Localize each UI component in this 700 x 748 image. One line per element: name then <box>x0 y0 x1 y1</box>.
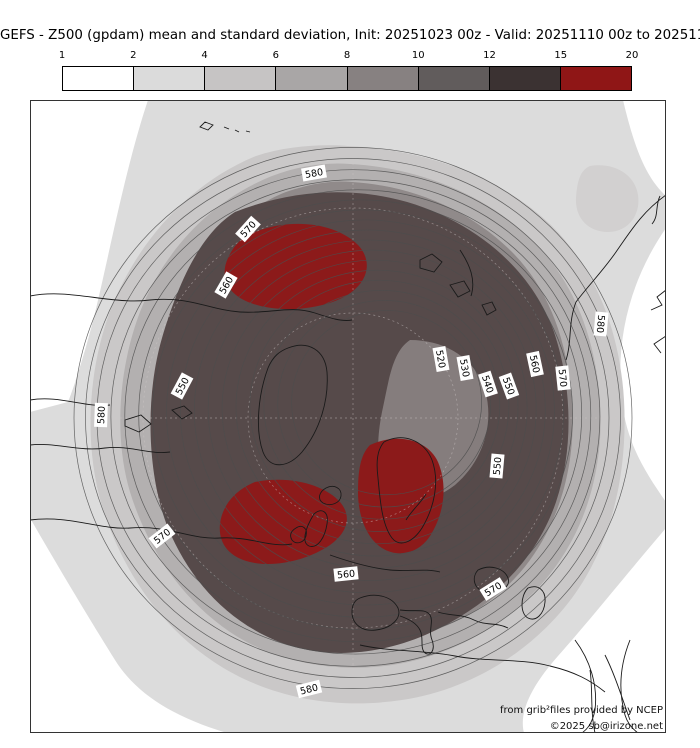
colorbar-segment <box>490 67 561 90</box>
colorbar-segment <box>276 67 347 90</box>
stddev-shading-layer <box>30 100 666 733</box>
contour-label-text: 560 <box>337 569 356 582</box>
attribution-copyright: ©2025 sb@irizone.net <box>550 721 663 732</box>
colorbar-segment <box>561 67 631 90</box>
colorbar-tick-label: 20 <box>612 50 652 61</box>
map-svg: 5805705605505805705205305405505605705805… <box>30 100 666 733</box>
colorbar-segment <box>419 67 490 90</box>
contour-label: 580 <box>94 403 108 427</box>
colorbar-segment <box>63 67 134 90</box>
colorbar-segment <box>205 67 276 90</box>
contour-label: 580 <box>593 311 608 336</box>
colorbar-tick-label: 4 <box>185 50 225 61</box>
contour-label-text: 580 <box>594 314 607 333</box>
colorbar-tick-label: 12 <box>470 50 510 61</box>
colorbar-tick-labels: 1246810121520 <box>0 50 700 64</box>
attribution-source: from grib²files provided by NCEP <box>500 705 663 716</box>
colorbar-tick-label: 8 <box>327 50 367 61</box>
colorbar-tick-label: 6 <box>256 50 296 61</box>
contour-label: 560 <box>333 566 358 581</box>
contour-label-text: 570 <box>556 369 569 388</box>
colorbar <box>62 66 632 91</box>
contour-label-text: 580 <box>96 406 108 425</box>
contour-label: 550 <box>489 453 504 478</box>
colorbar-tick-label: 15 <box>541 50 581 61</box>
colorbar-tick-label: 1 <box>42 50 82 61</box>
colorbar-segment <box>348 67 419 90</box>
colorbar-tick-label: 2 <box>113 50 153 61</box>
contour-label-text: 550 <box>492 457 505 476</box>
chart-title: GEFS - Z500 (gpdam) mean and standard de… <box>0 28 700 43</box>
contour-label: 570 <box>555 365 570 390</box>
colorbar-tick-label: 10 <box>398 50 438 61</box>
map-panel: 5805705605505805705205305405505605705805… <box>30 100 666 733</box>
colorbar-segment <box>134 67 205 90</box>
figure-root: GEFS - Z500 (gpdam) mean and standard de… <box>0 0 700 748</box>
